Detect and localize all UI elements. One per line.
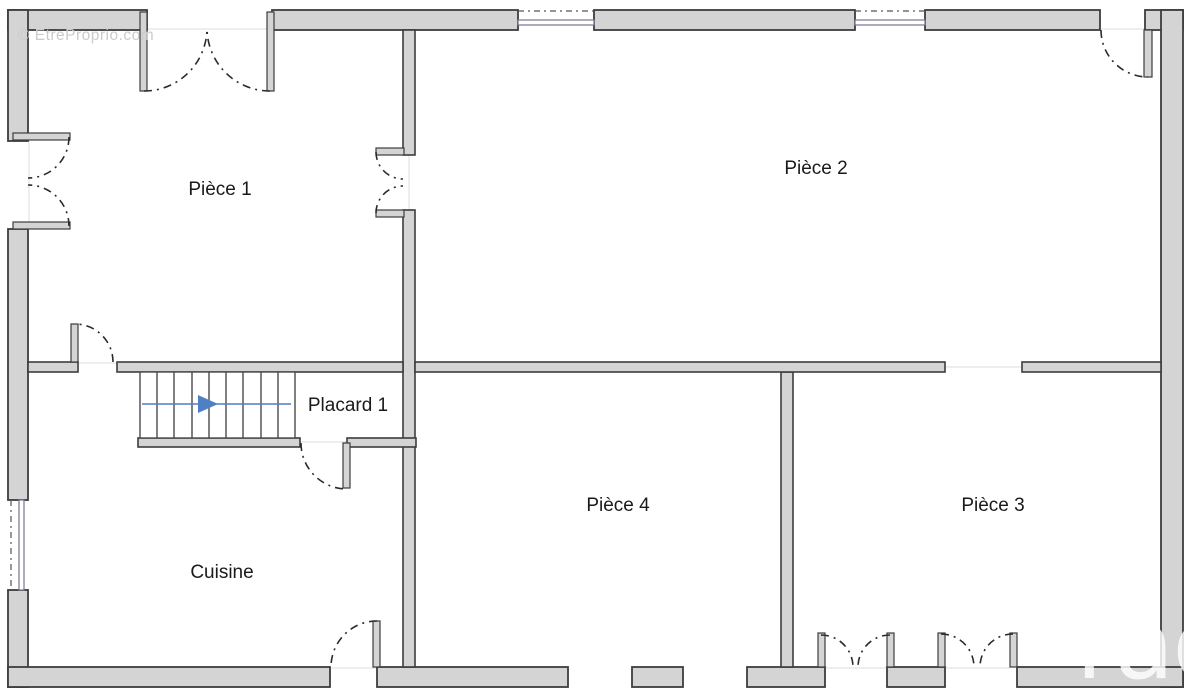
wall-placard-bottom bbox=[347, 438, 416, 447]
door-leaf-french-top bbox=[13, 133, 70, 140]
door-arc-cuisine-s bbox=[331, 621, 377, 667]
wall-top bbox=[272, 10, 518, 30]
door-leaf-cuisine-s bbox=[373, 621, 380, 667]
wall-horizontal bbox=[1022, 362, 1161, 372]
floor-plan: Pièce 1 Pièce 2 Placard 1 Pièce 4 Pièce … bbox=[0, 0, 1200, 691]
door-arc-interior-bottom bbox=[376, 186, 403, 213]
wall-horizontal bbox=[117, 362, 403, 372]
door-leaf-piece3-d2-right bbox=[1010, 633, 1017, 667]
stairs bbox=[140, 372, 295, 438]
door-arc-piece3-d2-right bbox=[980, 634, 1013, 667]
room-label-piece2: Pièce 2 bbox=[784, 158, 847, 180]
door-arc-piece2 bbox=[1101, 30, 1148, 77]
door-leaf-french-bottom bbox=[13, 222, 70, 229]
door-arc-placard bbox=[301, 443, 347, 489]
door-leaf-piece3-d2-left bbox=[938, 633, 945, 667]
wall-piece4-piece3 bbox=[781, 372, 793, 667]
room-label-cuisine: Cuisine bbox=[190, 562, 253, 584]
door-arc-cuisine-nw bbox=[75, 324, 113, 362]
door-arc-french-bottom bbox=[28, 185, 69, 226]
room-label-piece4: Pièce 4 bbox=[586, 495, 649, 517]
wall-left bbox=[8, 229, 28, 500]
wall-right bbox=[1161, 10, 1183, 687]
door-leaf-piece2 bbox=[1144, 30, 1152, 77]
door-arc-piece3-d2-left bbox=[941, 634, 974, 667]
wall-top bbox=[925, 10, 1100, 30]
room-label-piece1: Pièce 1 bbox=[188, 179, 251, 201]
door-leaf-entrance-right bbox=[267, 12, 274, 91]
watermark-top-left: © EtreProprio.com bbox=[18, 27, 154, 45]
wall-top bbox=[594, 10, 855, 30]
wall-bottom bbox=[8, 667, 330, 687]
floor-plan-drawing bbox=[0, 0, 1200, 691]
wall-bottom bbox=[747, 667, 825, 687]
wall-bottom bbox=[887, 667, 945, 687]
wall-piece1-piece2 bbox=[403, 30, 415, 155]
door-leaf-piece3-d1-right bbox=[887, 633, 894, 667]
room-label-placard1: Placard 1 bbox=[308, 395, 388, 417]
door-arc-piece3-d1-right bbox=[858, 635, 890, 667]
wall-horizontal bbox=[28, 362, 78, 372]
door-arc-entrance-right bbox=[207, 28, 270, 91]
window-top-1 bbox=[518, 20, 594, 25]
outer-walls bbox=[8, 10, 1183, 687]
wall-stairs-bottom bbox=[138, 438, 300, 447]
door-leaf-interior-bottom bbox=[376, 210, 404, 217]
door-leaf-entrance-left bbox=[140, 12, 147, 91]
window-top-2 bbox=[855, 20, 925, 25]
door-leaf-interior-top bbox=[376, 148, 404, 155]
door-leaf-placard bbox=[343, 443, 350, 488]
room-label-piece3: Pièce 3 bbox=[961, 495, 1024, 517]
window-left bbox=[19, 500, 24, 590]
door-arc-interior-top bbox=[376, 152, 403, 179]
door-leaf-piece3-d1-left bbox=[818, 633, 825, 667]
stairs-outline bbox=[140, 372, 295, 438]
door-leaf-cuisine-nw bbox=[71, 324, 78, 362]
wall-horizontal bbox=[415, 362, 945, 372]
door-leaves bbox=[13, 12, 1152, 667]
door-arc-french-top bbox=[28, 137, 69, 178]
door-arc-piece3-d1-left bbox=[821, 635, 853, 667]
wall-bottom bbox=[377, 667, 568, 687]
wall-bottom bbox=[1017, 667, 1183, 687]
wall-bottom bbox=[632, 667, 683, 687]
